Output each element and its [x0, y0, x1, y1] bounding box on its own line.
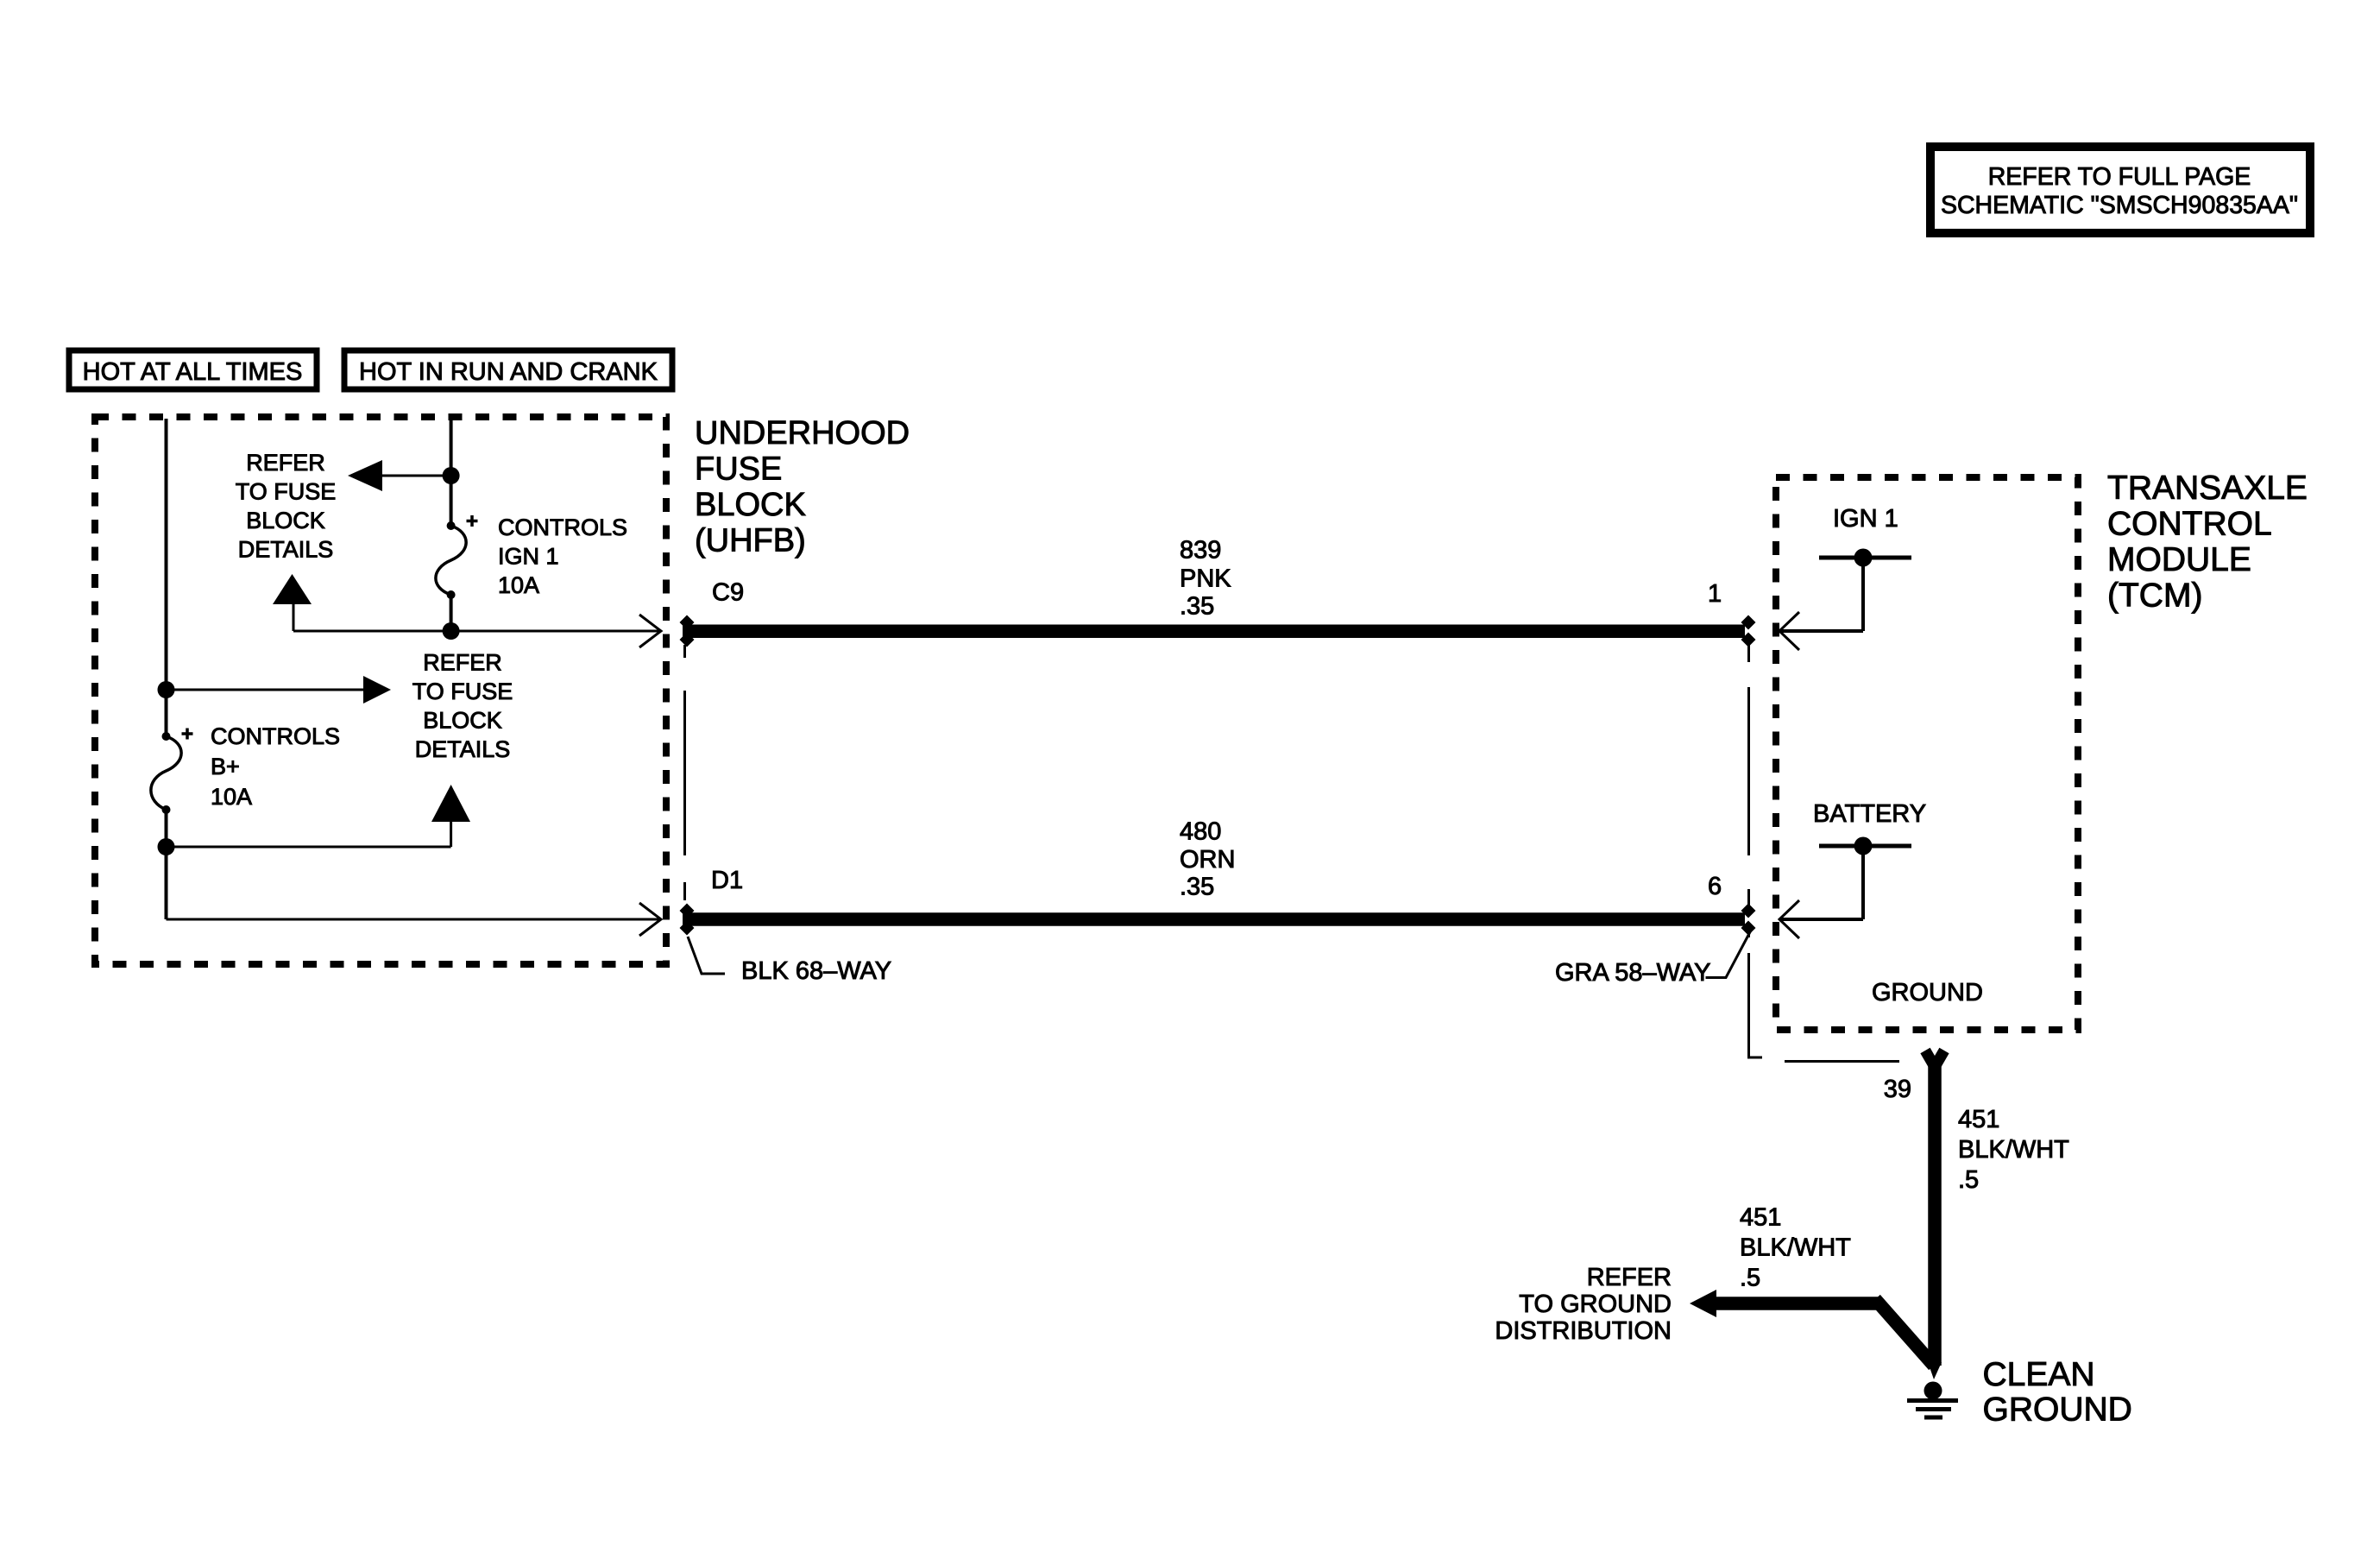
svg-text:(UHFB): (UHFB) [695, 523, 806, 559]
svg-text:.35: .35 [1180, 874, 1214, 901]
svg-text:TRANSAXLE: TRANSAXLE [2107, 470, 2308, 507]
svg-text:480: 480 [1180, 818, 1221, 846]
svg-text:BLOCK: BLOCK [695, 487, 806, 523]
svg-text:CONTROLS: CONTROLS [498, 514, 627, 540]
svg-text:1: 1 [1708, 580, 1722, 608]
svg-text:REFER: REFER [246, 450, 325, 476]
svg-text:TO FUSE: TO FUSE [236, 479, 337, 505]
svg-text:HOT IN RUN AND CRANK: HOT IN RUN AND CRANK [359, 358, 658, 386]
svg-text:SCHEMATIC "SMSCH90835AA": SCHEMATIC "SMSCH90835AA" [1941, 192, 2298, 219]
svg-text:CONTROL: CONTROL [2107, 506, 2272, 543]
svg-text:BLK/WHT: BLK/WHT [1740, 1234, 1851, 1262]
svg-text:6: 6 [1708, 873, 1722, 900]
svg-text:TO FUSE: TO FUSE [412, 678, 513, 704]
svg-text:.35: .35 [1180, 593, 1214, 621]
svg-text:GROUND: GROUND [1872, 979, 1983, 1007]
svg-text:REFER: REFER [423, 650, 502, 676]
svg-text:REFER: REFER [1587, 1264, 1672, 1291]
svg-text:10A: 10A [498, 572, 539, 598]
svg-text:(TCM): (TCM) [2107, 577, 2202, 615]
svg-text:B+: B+ [211, 754, 240, 779]
svg-text:HOT AT ALL TIMES: HOT AT ALL TIMES [83, 358, 303, 386]
svg-text:BLOCK: BLOCK [423, 708, 502, 734]
svg-text:REFER TO FULL PAGE: REFER TO FULL PAGE [1988, 163, 2251, 191]
svg-text:MODULE: MODULE [2107, 541, 2251, 578]
svg-text:BLK 68–WAY: BLK 68–WAY [741, 957, 891, 985]
svg-text:D1: D1 [711, 867, 743, 894]
svg-text:CLEAN: CLEAN [1983, 1356, 2095, 1393]
svg-text:10A: 10A [211, 784, 252, 810]
svg-text:IGN 1: IGN 1 [1833, 505, 1898, 533]
svg-text:BATTERY: BATTERY [1813, 800, 1926, 828]
svg-text:GRA 58–WAY: GRA 58–WAY [1555, 959, 1711, 987]
svg-text:BLOCK: BLOCK [246, 508, 325, 533]
svg-text:39: 39 [1884, 1076, 1911, 1103]
svg-text:.5: .5 [1958, 1166, 1979, 1194]
svg-text:451: 451 [1958, 1106, 1999, 1133]
svg-text:.5: .5 [1740, 1265, 1760, 1292]
svg-text:DETAILS: DETAILS [238, 537, 334, 563]
svg-text:PNK: PNK [1180, 565, 1231, 593]
svg-text:451: 451 [1740, 1204, 1781, 1232]
svg-text:ORN: ORN [1180, 846, 1235, 874]
svg-text:DETAILS: DETAILS [415, 736, 511, 762]
svg-text:TO GROUND: TO GROUND [1519, 1290, 1672, 1318]
svg-text:839: 839 [1180, 537, 1221, 565]
svg-text:IGN 1: IGN 1 [498, 544, 559, 570]
svg-text:DISTRIBUTION: DISTRIBUTION [1495, 1317, 1672, 1345]
svg-text:BLK/WHT: BLK/WHT [1958, 1136, 2069, 1164]
svg-text:C9: C9 [712, 579, 744, 607]
svg-text:CONTROLS: CONTROLS [211, 723, 340, 749]
svg-text:FUSE: FUSE [695, 451, 782, 488]
svg-text:UNDERHOOD: UNDERHOOD [695, 415, 910, 451]
svg-text:GROUND: GROUND [1983, 1391, 2132, 1429]
